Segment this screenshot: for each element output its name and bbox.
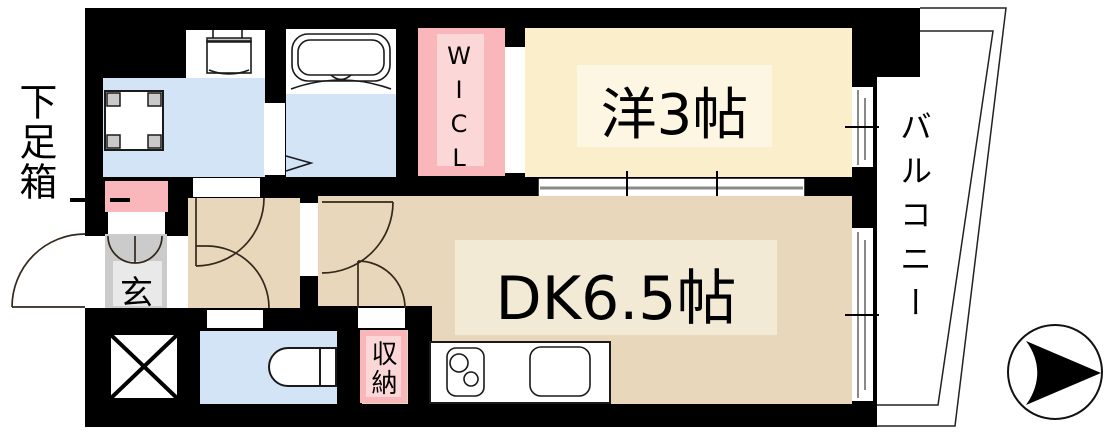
genkan-hall-opening [167,236,188,308]
top-right-wall-block [877,8,920,77]
hall-floor [188,198,300,308]
wicl-label: WICL [447,42,471,178]
bathroom-floor [286,94,396,177]
storage-label: 収納 [369,340,395,398]
pipe-shaft [108,332,180,401]
shoe-box-label: 下足箱 [14,82,54,202]
entry-door-arc [12,234,85,307]
floor-plan: 下足箱 玄 WICL 洋3帖 DK6.5帖 収納 バルコニー [0,0,1113,436]
compass [1008,325,1102,419]
wicl-door-opening [505,47,525,173]
shoe-box [105,181,168,212]
entry-step [108,212,165,234]
balcony-label: バルコニー [898,110,930,330]
storage-door-opening [358,308,405,328]
western-room-label: 洋3帖 [577,70,772,151]
dk-label: DK6.5帖 [455,250,777,337]
inner-wall [408,306,432,404]
floor-plan-drawing [0,0,1113,436]
hall-dk-opening [300,203,318,276]
genkan-label: 玄 [120,266,153,314]
kitchen-counter [430,342,610,403]
entry-opening [85,236,105,308]
toilet-door-opening [207,310,263,328]
bathroom-door-opening [264,103,285,175]
washing-machine-icon [105,91,163,150]
toilet-icon [269,348,336,386]
bathtub-niche [286,29,396,94]
washroom-door-opening [193,178,260,197]
